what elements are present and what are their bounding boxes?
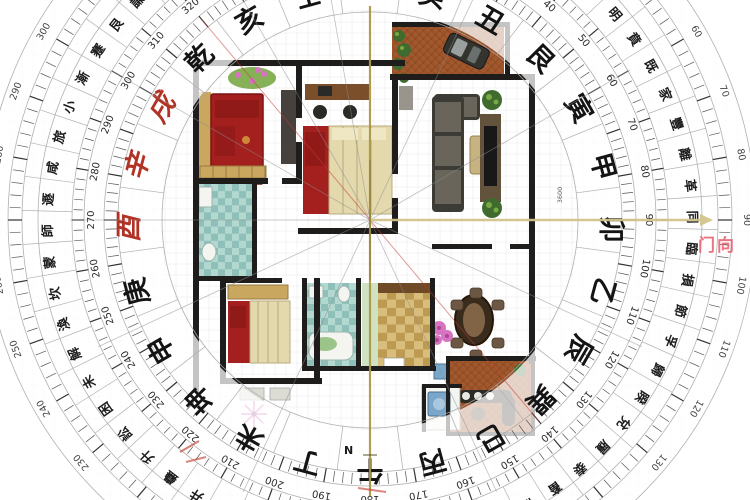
svg-text:90: 90: [741, 214, 750, 226]
svg-text:遯: 遯: [41, 192, 57, 206]
svg-text:師: 師: [40, 224, 56, 237]
svg-text:80: 80: [638, 164, 651, 178]
fengshui-compass-floorplan: 3600101020203030404050506060707080809090…: [0, 0, 750, 500]
svg-text:臨: 臨: [683, 242, 700, 256]
svg-text:子: 子: [357, 0, 384, 4]
svg-text:蒙: 蒙: [42, 255, 59, 270]
svg-text:80: 80: [734, 148, 747, 162]
svg-text:革: 革: [681, 178, 698, 193]
bathroom-1: [197, 184, 253, 276]
kitchen: [362, 283, 432, 367]
svg-text:咸: 咸: [44, 160, 62, 176]
svg-text:同: 同: [684, 210, 699, 223]
svg-text:3600: 3600: [556, 187, 564, 204]
scene-canvas: 3600101020203030404050506060707080809090…: [0, 0, 750, 500]
